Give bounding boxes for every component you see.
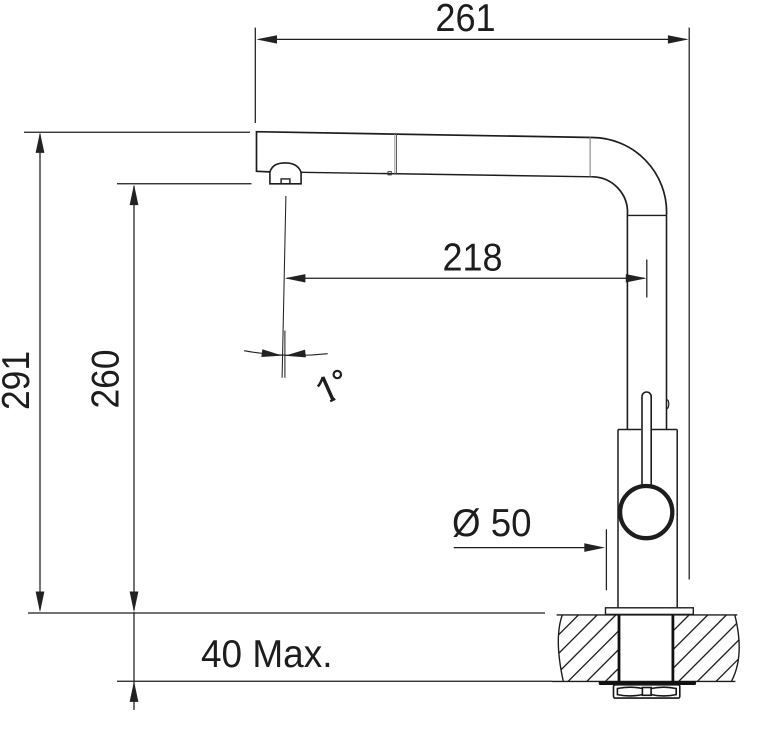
svg-text:260: 260 bbox=[84, 350, 127, 409]
svg-text:261: 261 bbox=[435, 0, 495, 40]
svg-text:40 Max.: 40 Max. bbox=[201, 633, 333, 676]
svg-text:291: 291 bbox=[0, 351, 38, 410]
svg-text:218: 218 bbox=[443, 237, 503, 280]
svg-text:Ø 50: Ø 50 bbox=[452, 502, 532, 545]
